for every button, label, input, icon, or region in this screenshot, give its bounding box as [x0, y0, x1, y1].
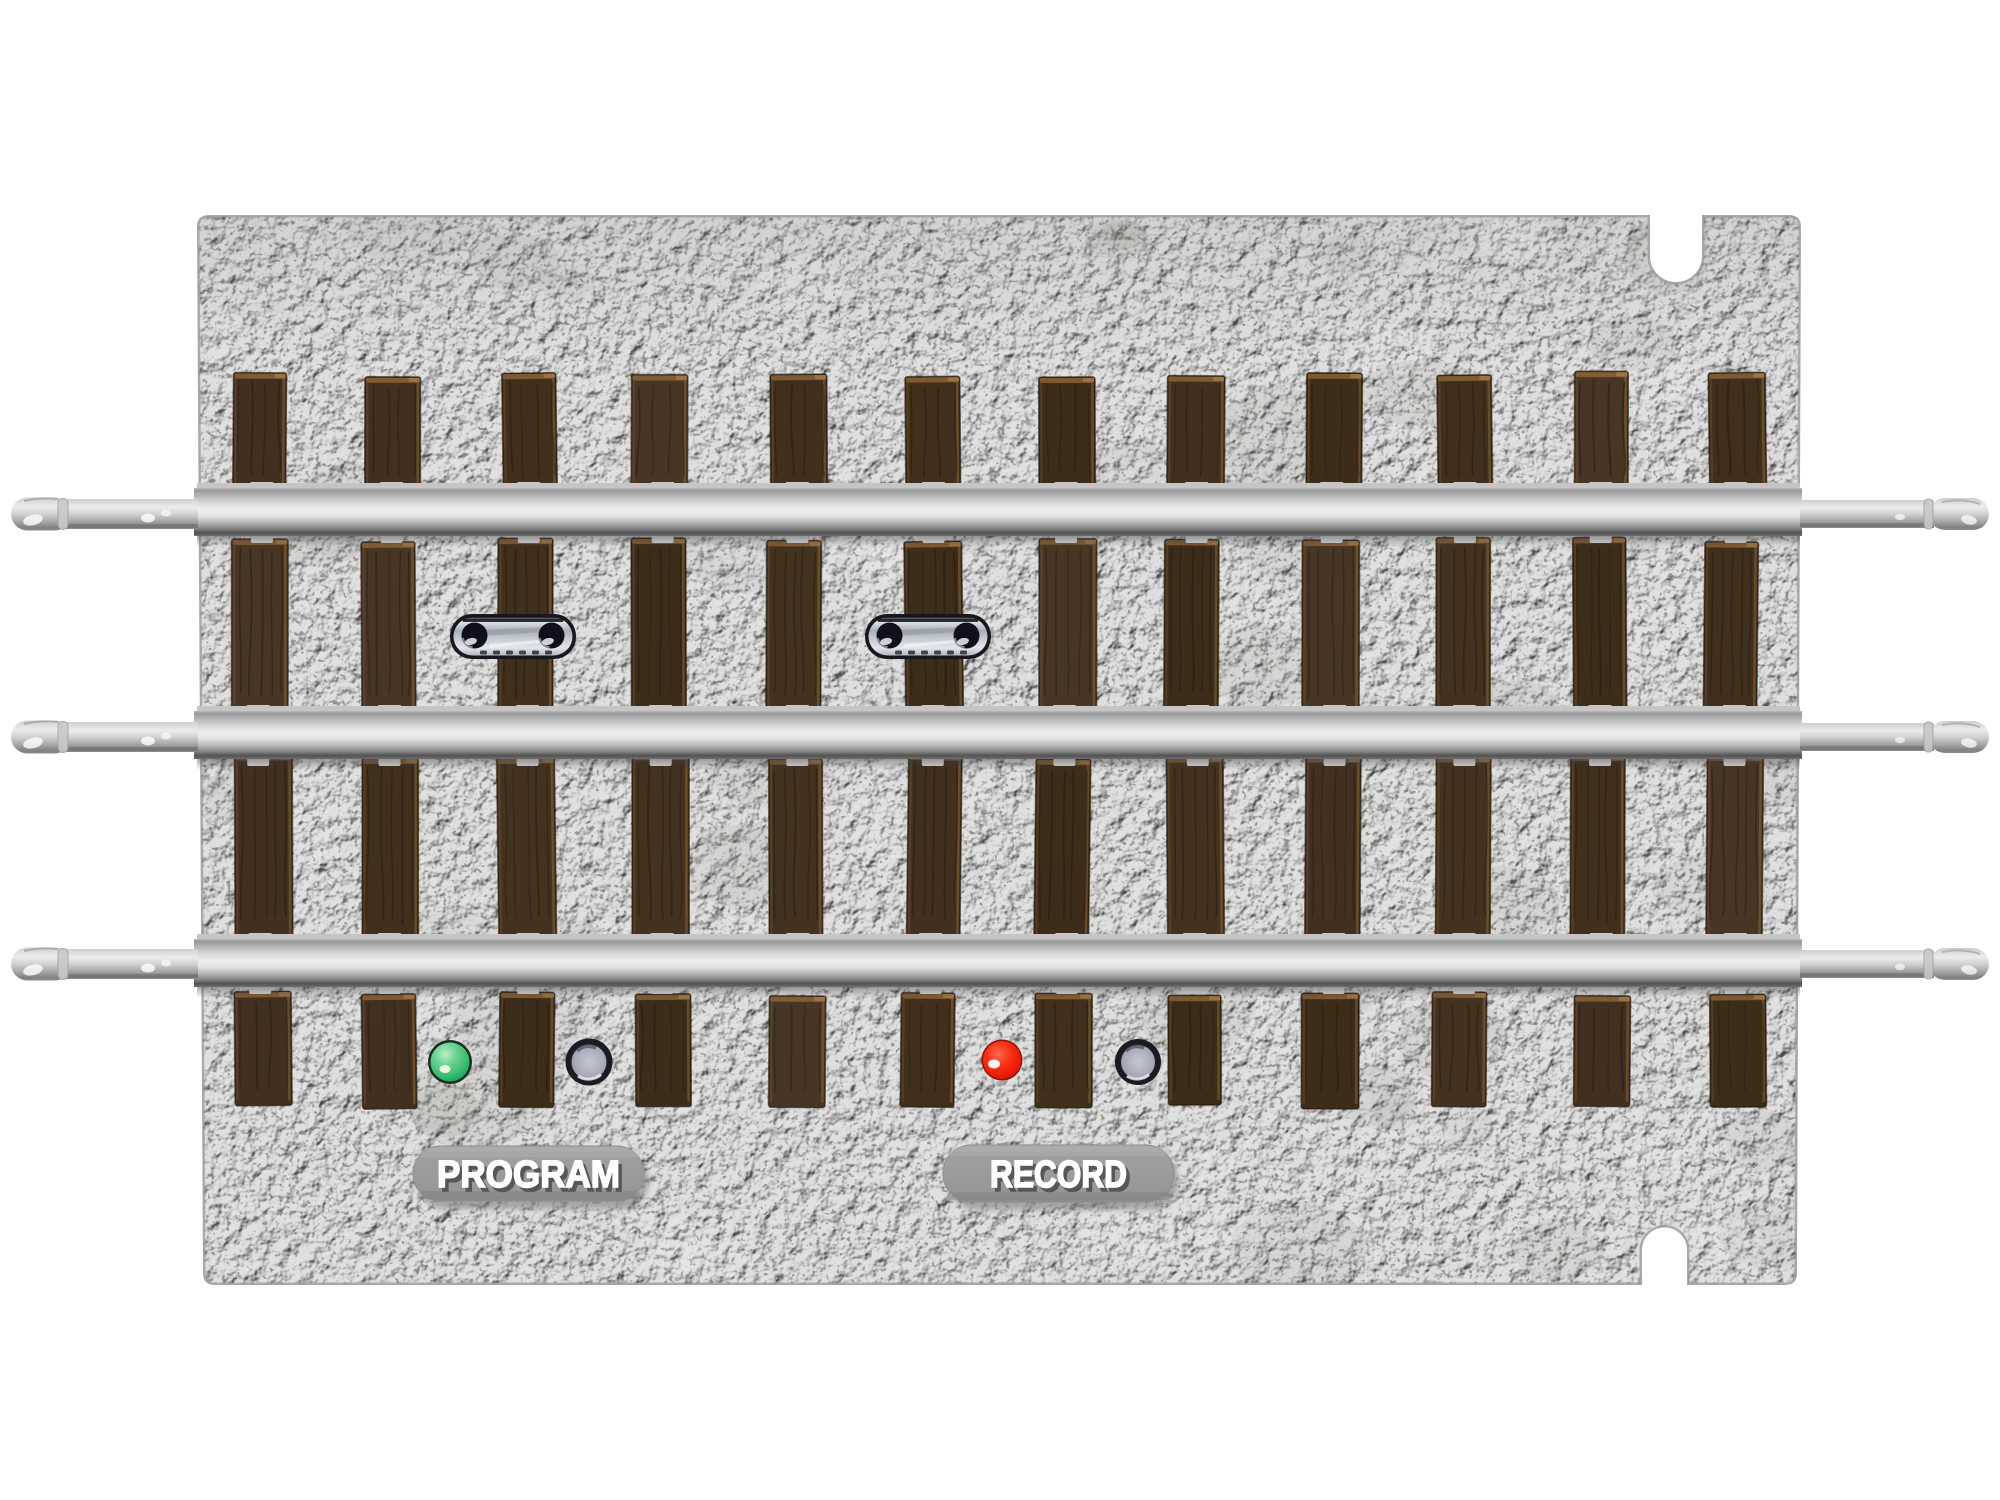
svg-text:PROGRAM: PROGRAM	[437, 1154, 620, 1196]
svg-text:RECORD: RECORD	[990, 1154, 1127, 1196]
